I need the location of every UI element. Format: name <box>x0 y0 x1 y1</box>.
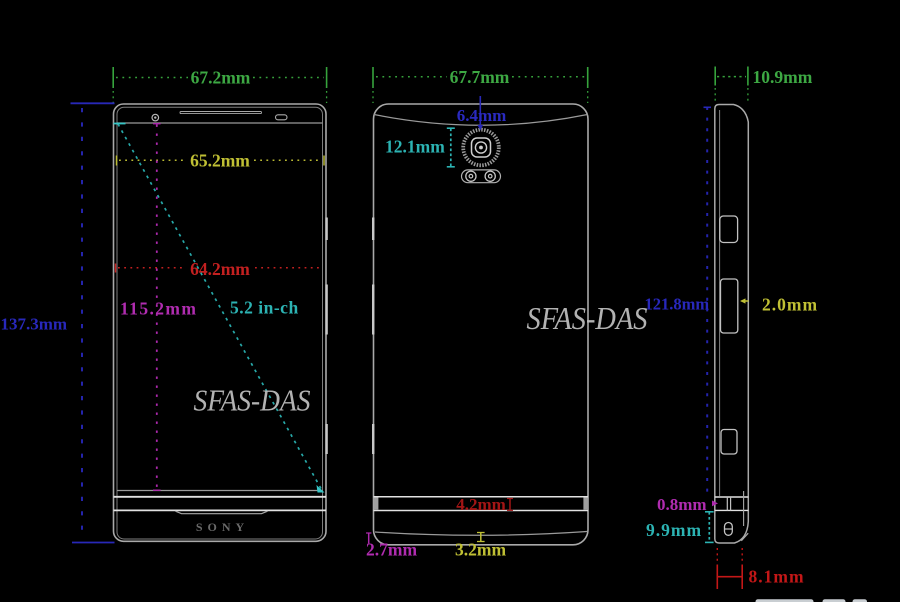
svg-text:0.8mm: 0.8mm <box>657 495 707 514</box>
svg-text:9.9mm: 9.9mm <box>646 520 702 540</box>
svg-text:5.2 in-ch: 5.2 in-ch <box>230 297 299 317</box>
svg-text:SONY: SONY <box>196 520 249 534</box>
svg-text:115.2mm: 115.2mm <box>120 299 197 319</box>
svg-text:121.8mm: 121.8mm <box>645 295 710 314</box>
svg-text:3.2mm: 3.2mm <box>455 540 506 560</box>
svg-text:12.1mm: 12.1mm <box>385 136 445 156</box>
svg-text:67.2mm: 67.2mm <box>191 68 251 88</box>
svg-text:2.7mm: 2.7mm <box>366 540 417 560</box>
svg-text:6.4mm: 6.4mm <box>457 106 507 125</box>
svg-text:10.9mm: 10.9mm <box>753 67 813 87</box>
svg-text:65.2mm: 65.2mm <box>190 150 250 170</box>
svg-text:67.7mm: 67.7mm <box>450 67 510 87</box>
svg-text:SFAS-DAS: SFAS-DAS <box>194 383 311 418</box>
svg-text:137.3mm: 137.3mm <box>1 314 68 333</box>
svg-text:64.2mm: 64.2mm <box>190 259 250 279</box>
svg-text:SFAS-DAS: SFAS-DAS <box>527 300 648 336</box>
svg-text:2.0mm: 2.0mm <box>762 294 818 314</box>
svg-text:8.1mm: 8.1mm <box>749 566 805 586</box>
svg-text:4.2mm: 4.2mm <box>456 495 506 514</box>
